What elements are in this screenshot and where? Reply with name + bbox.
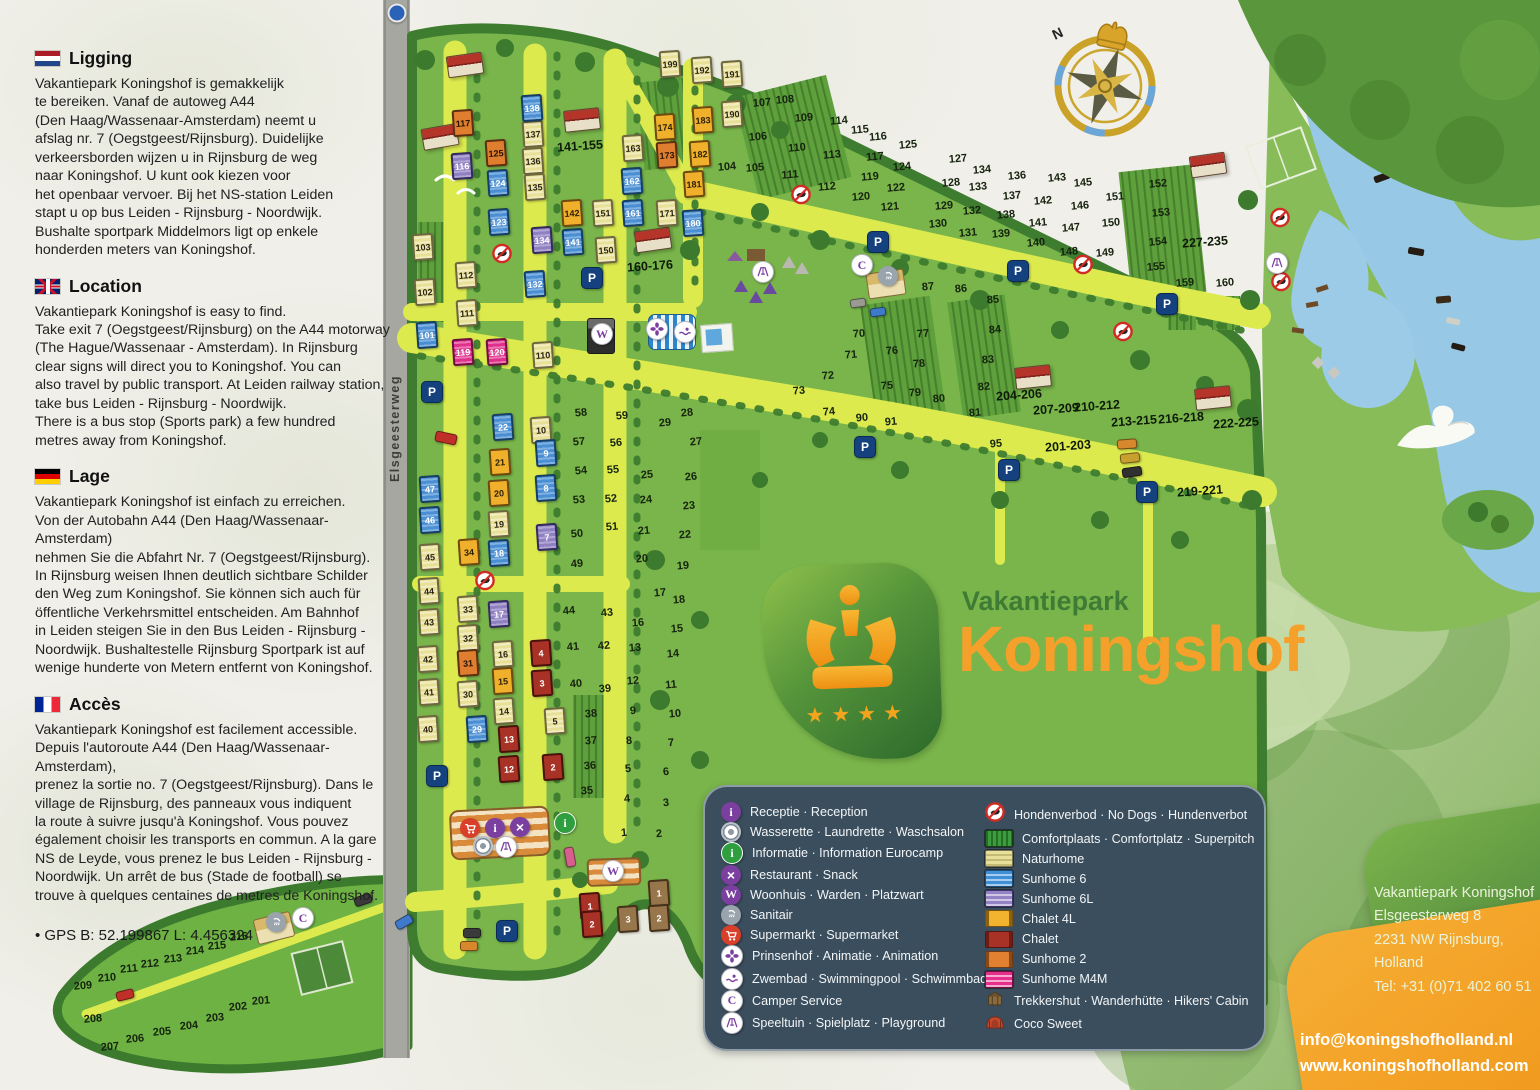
- pitch-number: 6: [662, 766, 669, 778]
- legend-panel: iReceptie · ReceptionWasserette · Laundr…: [703, 785, 1266, 1051]
- plot-marker: 9: [535, 439, 558, 467]
- pitch-number: 83: [981, 353, 994, 366]
- plot-marker: 20: [488, 479, 511, 507]
- pitch-number: 114: [830, 114, 849, 128]
- plot-marker: 46: [419, 506, 442, 534]
- legend-item: CCamper Service: [721, 990, 973, 1012]
- pitch-number: 210: [97, 971, 116, 985]
- pitch-number: 116: [869, 130, 888, 144]
- plot-marker: 30: [457, 680, 480, 708]
- brochure-page: N 13713613515115016317119919219119011210…: [0, 0, 1540, 1090]
- no-dogs-icon: [1073, 255, 1093, 280]
- pitch-number: 150: [1101, 216, 1120, 230]
- plot-marker: 132: [524, 270, 547, 298]
- pitch-number: 74: [822, 405, 835, 418]
- legend-label: Prinsenhof · Animatie · Animation: [752, 949, 938, 963]
- pitch-number: 127: [948, 152, 967, 166]
- pitch-number: 154: [1148, 235, 1167, 249]
- restaurant-icon: ×: [510, 817, 530, 837]
- legend-label: Sunhome 6L: [1022, 892, 1093, 906]
- pitch-number: 55: [606, 463, 619, 476]
- section-acces: Accès Vakantiepark Koningshof est facile…: [35, 694, 403, 906]
- pitch-range-label: 213-215: [1111, 412, 1158, 429]
- legend-label: Chalet 4L: [1022, 912, 1076, 926]
- logo-shield: ★★★★: [761, 561, 944, 763]
- plot-marker: 15: [492, 667, 515, 695]
- pitch-number: 43: [600, 606, 613, 619]
- pitch-number: 50: [570, 527, 583, 540]
- pitch-number: 159: [1175, 276, 1194, 290]
- vehicle: [849, 297, 866, 308]
- legend-label: Chalet: [1022, 932, 1058, 946]
- parking-icon: P: [496, 920, 518, 942]
- plot-marker: 1: [648, 879, 671, 907]
- plot-marker: 174: [654, 113, 677, 141]
- plot-marker: 34: [458, 538, 481, 566]
- pitch-number: 1: [620, 827, 627, 839]
- legend-label: Sunhome M4M: [1022, 972, 1107, 986]
- pitch-number: 84: [988, 323, 1001, 336]
- plot-marker: 117: [452, 109, 475, 137]
- pitch-number: 146: [1070, 199, 1089, 213]
- pitch-number: 75: [880, 379, 893, 392]
- legend-label: Wasserette · Laundrette · Waschsalon: [750, 825, 964, 839]
- parking-icon: P: [867, 231, 889, 253]
- pitch-number: 29: [658, 416, 671, 429]
- plot-marker: 137: [522, 120, 545, 148]
- plot-marker: 21: [489, 448, 512, 476]
- plot-marker: 32: [457, 624, 480, 652]
- pitch-number: 19: [676, 559, 689, 572]
- legend-label: Sunhome 2: [1022, 952, 1086, 966]
- pitch-number: 206: [125, 1032, 144, 1046]
- plot-marker: 162: [621, 167, 644, 195]
- tent-icon: [749, 291, 763, 303]
- pitch-number: 137: [1002, 189, 1021, 203]
- pitch-number: 107: [752, 96, 771, 110]
- pitch-number: 211: [120, 962, 139, 976]
- section-title: Ligging: [35, 48, 403, 69]
- plot-marker: 182: [689, 140, 712, 168]
- plot-marker: 17: [488, 600, 511, 628]
- reception-icon: i: [721, 802, 741, 822]
- plot-marker: 191: [721, 60, 744, 88]
- plot-marker: 110: [532, 341, 555, 369]
- pitch-number: 56: [609, 436, 622, 449]
- plot-marker: 41: [418, 678, 441, 706]
- legend-label: Trekkershut · Wanderhütte · Hikers' Cabi…: [1014, 994, 1249, 1008]
- pitch-number: 120: [851, 190, 870, 204]
- plot-marker: 31: [457, 649, 480, 677]
- plot-marker: 101: [416, 321, 439, 349]
- pitch-number: 153: [1151, 206, 1170, 220]
- pitch-number: 132: [962, 204, 981, 218]
- section-text: Vakantiepark Koningshof is gemakkelijk t…: [35, 75, 403, 260]
- parking-icon: P: [854, 436, 876, 458]
- brand-name: Koningshof: [958, 612, 1303, 686]
- pitch-range-label: 160-176: [627, 257, 674, 274]
- vehicle: [563, 846, 576, 867]
- pitch-number: 115: [851, 123, 870, 137]
- plot-marker: 138: [521, 94, 544, 122]
- tent-icon: [763, 282, 777, 294]
- tent-icon: [795, 262, 809, 274]
- plot-marker: 199: [659, 50, 682, 78]
- plot-marker: 124: [487, 169, 510, 197]
- tent-icon: [782, 256, 796, 268]
- legend-item: iInformatie · Information Eurocamp: [721, 842, 973, 864]
- pitch-number: 80: [932, 392, 945, 405]
- prinsenhof-icon: [721, 945, 743, 967]
- plot-marker: 135: [524, 173, 547, 201]
- pitch-number: 13: [628, 641, 641, 654]
- sunhome6-swatch: [985, 870, 1013, 887]
- legend-item: Sanitair: [721, 905, 973, 925]
- nodogs-icon: [985, 802, 1005, 827]
- pitch-number: 113: [823, 148, 842, 162]
- legend-item: Prinsenhof · Animatie · Animation: [721, 945, 973, 967]
- comfort-swatch: [985, 830, 1013, 847]
- pitch-number: 106: [748, 130, 767, 144]
- plot-marker: 18: [488, 539, 511, 567]
- legend-label: Informatie · Information Eurocamp: [752, 846, 943, 860]
- plot-marker: 43: [418, 608, 441, 636]
- plot-marker: 3: [617, 905, 640, 933]
- no-dogs-icon: [492, 244, 512, 269]
- pitch-number: 87: [921, 280, 934, 293]
- plot-marker: 190: [721, 100, 744, 128]
- pitch-number: 149: [1095, 246, 1114, 260]
- speeltuin-icon: [752, 261, 774, 283]
- plot-marker: 2: [581, 910, 604, 938]
- section-title: Accès: [35, 694, 403, 715]
- pitch-number: 209: [73, 979, 92, 993]
- pitch-number: 130: [928, 217, 947, 231]
- pitch-number: 131: [958, 226, 977, 240]
- section-title: Lage: [35, 466, 403, 487]
- pitch-number: 20: [635, 552, 648, 565]
- legend-item: Comfortplaats · Comfortplatz · Superpitc…: [985, 830, 1254, 847]
- legend-column-right: Hondenverbod · No Dogs · HundenverbotCom…: [985, 802, 1254, 1034]
- section-text: Vakantiepark Koningshof is easy to find.…: [35, 303, 403, 451]
- legend-item: Zwembad · Swimmingpool · Schwimmbad: [721, 968, 973, 990]
- pitch-number: 145: [1073, 176, 1092, 190]
- pitch-number: 53: [572, 493, 585, 506]
- plot-marker: 47: [419, 475, 442, 503]
- pitch-number: 81: [968, 406, 981, 419]
- legend-item: Sunhome 6L: [985, 890, 1254, 907]
- pitch-number: 105: [745, 161, 764, 175]
- pitch-number: 9: [629, 705, 636, 717]
- crown-icon: [789, 580, 913, 704]
- plot-marker: 181: [683, 170, 706, 198]
- plot-marker: 141: [562, 228, 585, 256]
- pitch-number: 208: [83, 1012, 102, 1026]
- pitch-number: 125: [898, 138, 917, 152]
- trekkershut-icon: [985, 991, 1005, 1011]
- cocosweet-icon: [985, 1014, 1005, 1034]
- pitch-number: 16: [631, 616, 644, 629]
- pitch-number: 26: [684, 470, 697, 483]
- plot-marker: 40: [417, 715, 440, 743]
- plot-marker: 19: [488, 510, 511, 538]
- pitch-number: 35: [580, 784, 593, 797]
- parking-icon: P: [1136, 481, 1158, 503]
- legend-item: Wasserette · Laundrette · Waschsalon: [721, 822, 973, 842]
- pitch-number: 40: [569, 677, 582, 690]
- plot-marker: 44: [418, 577, 441, 605]
- plot-marker: 16: [492, 640, 515, 668]
- legend-label: Sunhome 6: [1022, 872, 1086, 886]
- pitch-number: 28: [680, 406, 693, 419]
- woonhuis-icon: W: [591, 323, 613, 345]
- plot-marker: 2: [542, 753, 565, 781]
- pitch-number: 119: [861, 170, 880, 184]
- sunhome6l-swatch: [985, 890, 1013, 907]
- pitch-number: 129: [934, 199, 953, 213]
- plot-marker: 180: [682, 209, 705, 237]
- plot-marker: 103: [412, 233, 435, 261]
- reception-icon: i: [485, 818, 505, 838]
- plot-marker: 4: [530, 639, 553, 667]
- plot-marker: 161: [622, 199, 645, 227]
- sanitair-icon: [721, 905, 741, 925]
- netherlands-flag-icon: [35, 51, 60, 66]
- pitch-number: 23: [682, 499, 695, 512]
- pitch-number: 95: [989, 437, 1002, 450]
- pitch-range-label: 141-155: [557, 137, 604, 154]
- sanitair-icon: [878, 266, 898, 286]
- pitch-number: 117: [866, 150, 885, 164]
- contact-links[interactable]: info@koningshofholland.nl www.koningshof…: [1300, 1028, 1529, 1079]
- no-dogs-icon: [791, 185, 811, 210]
- pitch-range-label: 207-209: [1033, 400, 1080, 417]
- pitch-range-label: 222-225: [1213, 414, 1260, 431]
- chalet4l-swatch: [985, 910, 1013, 927]
- legend-item: iReceptie · Reception: [721, 802, 973, 822]
- legend-label: Restaurant · Snack: [750, 868, 858, 882]
- pitch-number: 79: [908, 386, 921, 399]
- legend-item: Hondenverbod · No Dogs · Hundenverbot: [985, 802, 1254, 827]
- barn-building: [634, 227, 673, 254]
- plot-marker: 136: [522, 147, 545, 175]
- plot-marker: 119: [452, 338, 475, 366]
- logo: ★★★★ Vakantiepark Koningshof: [758, 556, 1303, 781]
- legend-label: Coco Sweet: [1014, 1017, 1082, 1031]
- vehicle: [460, 941, 478, 951]
- section-text: Vakantiepark Koningshof ist einfach zu e…: [35, 493, 403, 678]
- pitch-number: 71: [844, 348, 857, 361]
- speeltuin-icon: [721, 1012, 743, 1034]
- pitch-number: 73: [792, 384, 805, 397]
- tent-icon: [734, 280, 748, 292]
- pitch-number: 70: [852, 327, 865, 340]
- pitch-number: 204: [179, 1019, 198, 1033]
- vehicle: [1120, 452, 1141, 464]
- vehicle: [869, 306, 886, 317]
- camper-icon: C: [851, 254, 873, 276]
- pitch-number: 42: [597, 639, 610, 652]
- plot-marker: 8: [535, 474, 558, 502]
- parking-icon: P: [1007, 260, 1029, 282]
- plot-marker: 33: [457, 595, 480, 623]
- parking-icon: P: [998, 459, 1020, 481]
- woonhuis-legend-icon: W: [721, 885, 741, 905]
- pitch-number: 58: [574, 406, 587, 419]
- section-ligging: Ligging Vakantiepark Koningshof is gemak…: [35, 48, 403, 260]
- pitch-number: 108: [775, 93, 794, 107]
- pitch-number: 4: [623, 793, 630, 805]
- pitch-number: 11: [665, 679, 678, 692]
- pitch-number: 104: [717, 160, 736, 174]
- roundabout-icon: [388, 4, 407, 23]
- pitch-number: 122: [886, 181, 905, 195]
- plot-marker: 112: [455, 261, 478, 289]
- legend-item: Chalet: [985, 931, 1254, 948]
- legend-label: Naturhome: [1022, 852, 1084, 866]
- pitch-number: 59: [615, 409, 628, 422]
- parking-icon: P: [1156, 293, 1178, 315]
- plot-marker: 2: [648, 904, 671, 932]
- plot-marker: 125: [485, 139, 508, 167]
- plot-marker: 13: [498, 725, 521, 753]
- pitch-number: 44: [562, 604, 575, 617]
- pitch-number: 82: [977, 380, 990, 393]
- supermarkt-icon: [460, 818, 480, 838]
- plot-marker: 12: [498, 755, 521, 783]
- legend-item: Trekkershut · Wanderhütte · Hikers' Cabi…: [985, 991, 1254, 1011]
- pitch-number: 140: [1026, 236, 1045, 250]
- legend-item: Supermarkt · Supermarket: [721, 925, 973, 945]
- pitch-number: 207: [100, 1040, 119, 1054]
- pitch-range-label: 219-221: [1177, 482, 1224, 499]
- parking-icon: P: [581, 267, 603, 289]
- section-location: Location Vakantiepark Koningshof is easy…: [35, 276, 403, 451]
- pitch-number: 214: [185, 944, 204, 958]
- sunhomem4m-swatch: [985, 971, 1013, 988]
- plot-marker: 173: [656, 141, 679, 169]
- pitch-number: 142: [1033, 194, 1052, 208]
- information-icon: i: [554, 812, 576, 834]
- pitch-number: 36: [583, 759, 596, 772]
- pitch-range-label: 201-203: [1045, 437, 1092, 454]
- laundrette-icon: [473, 836, 493, 856]
- plot-marker: 171: [656, 199, 679, 227]
- uk-flag-icon: [35, 279, 60, 294]
- supermarkt-icon: [721, 925, 741, 945]
- pitch-number: 151: [1105, 190, 1124, 204]
- zwembad-icon: [674, 321, 696, 343]
- plot-marker: 5: [544, 707, 567, 735]
- logo-stars: ★★★★: [765, 699, 942, 730]
- barn-building: [1189, 152, 1228, 179]
- pitch-number: 24: [639, 493, 652, 506]
- section-title: Location: [35, 276, 403, 297]
- barn-building: [563, 107, 601, 133]
- pitch-number: 112: [818, 180, 837, 194]
- pitch-number: 14: [666, 647, 679, 660]
- plot-marker: 150: [595, 236, 618, 264]
- contact-address: Vakantiepark Koningshof Elsgeesterweg 8 …: [1374, 882, 1540, 999]
- plot-marker: 134: [531, 226, 554, 254]
- legend-item: Chalet 4L: [985, 910, 1254, 927]
- plot-marker: 163: [622, 134, 645, 162]
- pitch-number: 54: [574, 464, 587, 477]
- pitch-number: 52: [604, 492, 617, 505]
- info-panel: Ligging Vakantiepark Koningshof is gemak…: [35, 48, 403, 944]
- pitch-number: 133: [968, 180, 987, 194]
- plot-marker: 29: [466, 715, 489, 743]
- pitch-number: 85: [986, 293, 999, 306]
- parking-icon: P: [421, 381, 443, 403]
- legend-label: Comfortplaats · Comfortplatz · Superpitc…: [1022, 832, 1254, 846]
- pitch-number: 3: [662, 797, 669, 809]
- zwembad-icon: [721, 968, 743, 990]
- section-text: Vakantiepark Koningshof est facilement a…: [35, 721, 403, 906]
- plot-marker: 7: [536, 523, 559, 551]
- legend-label: Supermarkt · Supermarket: [750, 928, 898, 942]
- pitch-number: 49: [570, 557, 583, 570]
- pitch-number: 136: [1007, 169, 1026, 183]
- pitch-number: 138: [996, 208, 1015, 222]
- pitch-number: 39: [598, 682, 611, 695]
- pitch-range-label: 210-212: [1074, 397, 1121, 414]
- plot-marker: 151: [592, 199, 615, 227]
- pitch-number: 25: [640, 468, 653, 481]
- pitch-number: 15: [670, 622, 683, 635]
- legend-item: Sunhome 2: [985, 951, 1254, 968]
- france-flag-icon: [35, 697, 60, 712]
- pitch-number: 212: [140, 957, 159, 971]
- no-dogs-icon: [1271, 272, 1291, 297]
- plot-marker: 3: [531, 669, 554, 697]
- legend-item: Sunhome 6: [985, 870, 1254, 887]
- pitch-number: 41: [566, 640, 579, 653]
- pitch-number: 77: [916, 327, 929, 340]
- pitch-number: 37: [584, 734, 597, 747]
- pitch-range-label: 227-235: [1182, 233, 1229, 250]
- pitch-number: 8: [625, 735, 632, 747]
- pitch-range-label: 216-218: [1158, 409, 1205, 426]
- plot-marker: 22: [492, 413, 515, 441]
- pitch-number: 27: [689, 435, 702, 448]
- pitch-number: 134: [972, 163, 991, 177]
- plot-marker: 111: [456, 299, 479, 327]
- pitch-number: 121: [880, 200, 899, 214]
- pitch-number: 72: [821, 369, 834, 382]
- pitch-number: 10: [668, 707, 681, 720]
- pitch-number: 110: [788, 141, 807, 155]
- legend-label: Zwembad · Swimmingpool · Schwimmbad: [752, 972, 987, 986]
- legend-label: Camper Service: [752, 994, 842, 1008]
- pitch-number: 12: [626, 674, 639, 687]
- legend-label: Sanitair: [750, 908, 793, 922]
- pitch-number: 205: [152, 1025, 171, 1039]
- plot-marker: 102: [414, 278, 437, 306]
- pitch-number: 111: [781, 168, 799, 181]
- pitch-number: 141: [1028, 216, 1047, 230]
- pitch-number: 128: [941, 176, 960, 190]
- no-dogs-icon: [1270, 208, 1290, 233]
- plot-marker: 14: [493, 697, 516, 725]
- pitch-number: 155: [1146, 260, 1165, 274]
- woonhuis-icon: W: [602, 860, 624, 882]
- plot-marker: 192: [691, 56, 714, 84]
- pitch-number: 51: [605, 520, 618, 533]
- poolside-building: [700, 323, 734, 353]
- pitch-number: 17: [653, 586, 666, 599]
- germany-flag-icon: [35, 469, 60, 484]
